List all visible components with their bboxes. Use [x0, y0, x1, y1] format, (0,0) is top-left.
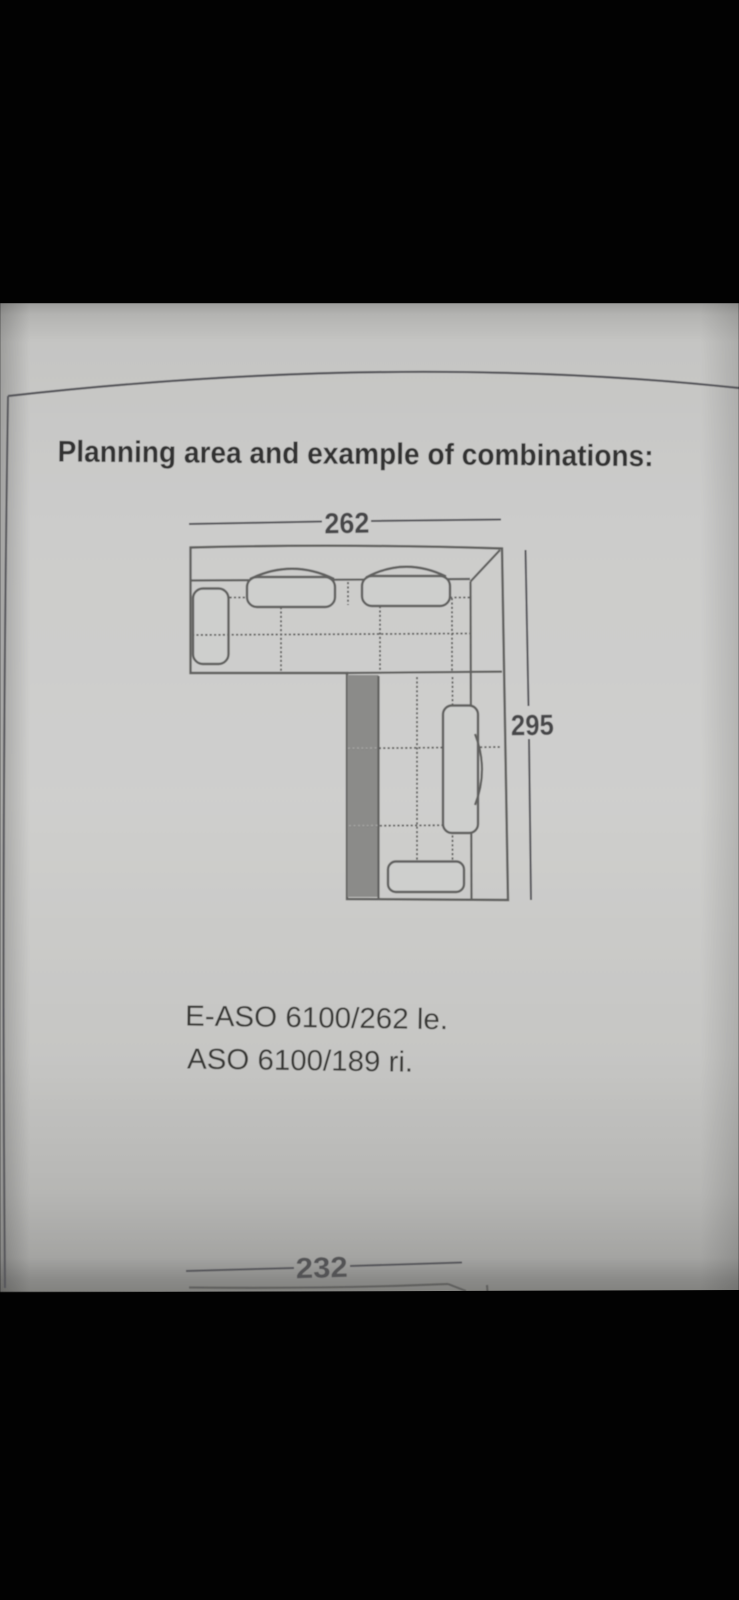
svg-text:232: 232: [295, 1252, 348, 1286]
svg-text:295: 295: [511, 710, 554, 743]
svg-text:E-ASO 6100/262 le.: E-ASO 6100/262 le.: [185, 1001, 448, 1037]
svg-text:262: 262: [324, 508, 369, 541]
svg-text:ASO 6100/189 ri.: ASO 6100/189 ri.: [187, 1044, 413, 1079]
svg-text:Planning area and example of c: Planning area and example of combination…: [57, 436, 653, 474]
